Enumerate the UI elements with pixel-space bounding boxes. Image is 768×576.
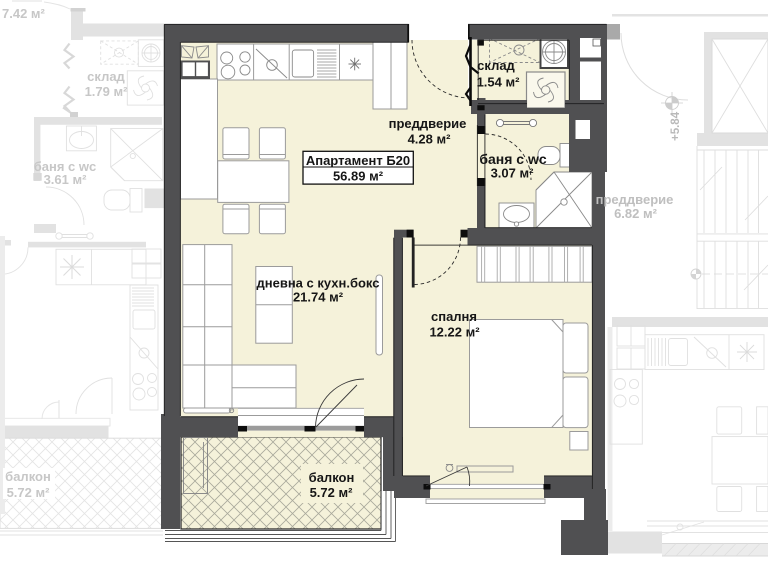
- svg-text:балкон: балкон: [5, 469, 51, 484]
- svg-text:склад: склад: [477, 58, 515, 73]
- svg-text:7.42 м²: 7.42 м²: [2, 6, 46, 21]
- svg-text:+5.84: +5.84: [670, 111, 682, 141]
- svg-text:21.74 м²: 21.74 м²: [293, 290, 344, 305]
- svg-text:дневна с кухн.бокс: дневна с кухн.бокс: [257, 276, 380, 291]
- svg-text:5.72 м²: 5.72 м²: [7, 485, 51, 500]
- svg-text:преддверие: преддверие: [389, 116, 467, 131]
- svg-text:3.61 м²: 3.61 м²: [44, 172, 88, 187]
- svg-text:4.28 м²: 4.28 м²: [408, 132, 452, 147]
- svg-text:1.54 м²: 1.54 м²: [477, 75, 521, 90]
- svg-text:6.82 м²: 6.82 м²: [614, 206, 658, 221]
- svg-text:3.07 м²: 3.07 м²: [491, 166, 535, 181]
- svg-text:56.89 м²: 56.89 м²: [333, 169, 384, 184]
- svg-text:спалня: спалня: [431, 309, 477, 324]
- svg-text:балкон: балкон: [309, 470, 355, 485]
- svg-text:склад: склад: [87, 69, 125, 84]
- svg-text:преддверие: преддверие: [596, 192, 674, 207]
- svg-text:5.72 м²: 5.72 м²: [310, 485, 354, 500]
- svg-text:Апартамент Б20: Апартамент Б20: [306, 153, 410, 168]
- svg-text:12.22 м²: 12.22 м²: [429, 325, 480, 340]
- svg-text:1.79 м²: 1.79 м²: [85, 84, 129, 99]
